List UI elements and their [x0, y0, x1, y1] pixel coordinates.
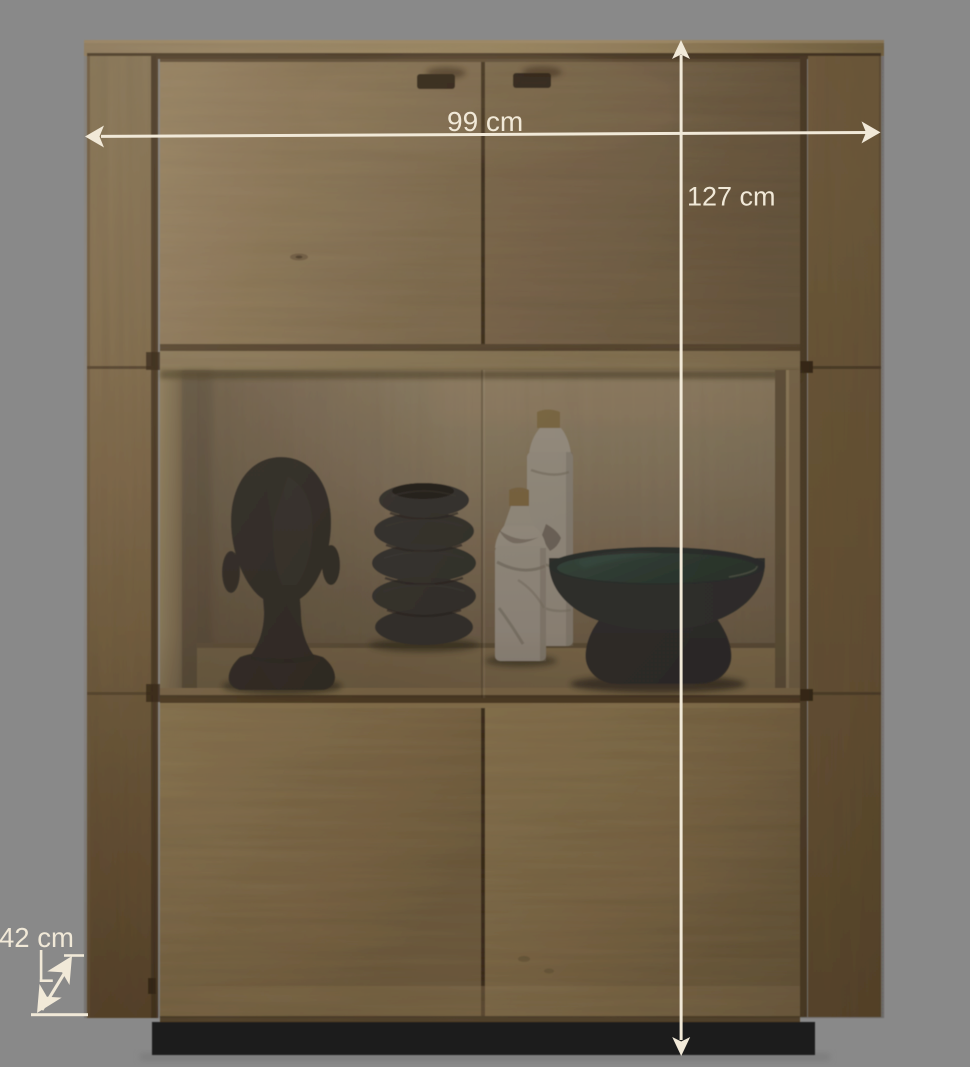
- svg-text:127 cm: 127 cm: [687, 182, 776, 212]
- svg-text:99 cm: 99 cm: [447, 106, 523, 137]
- svg-text:42 cm: 42 cm: [0, 922, 74, 953]
